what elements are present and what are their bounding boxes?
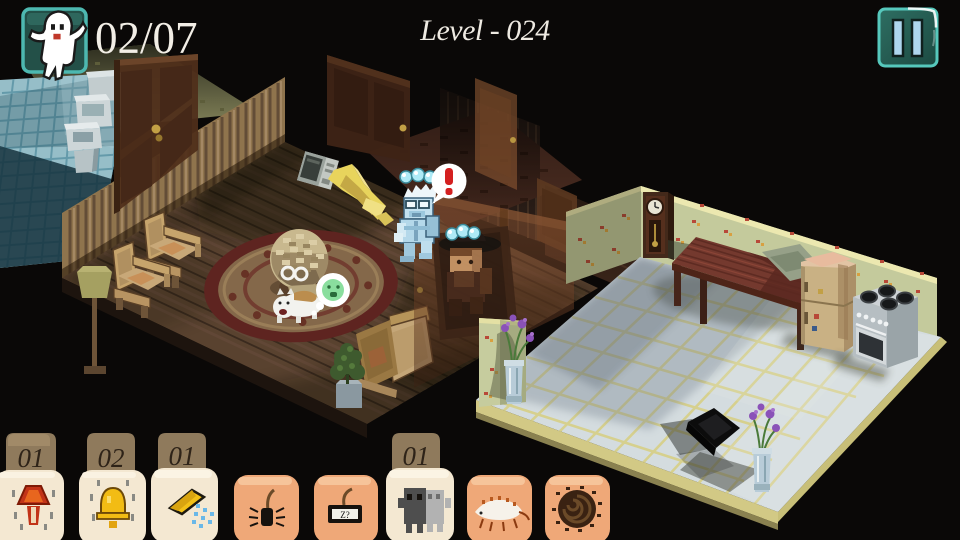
- svg-text:Level - 024: Level - 024: [419, 14, 550, 47]
- svg-text:02/07: 02/07: [95, 13, 198, 63]
- svg-text:Z?: Z?: [340, 510, 350, 520]
- svg-text:02: 02: [98, 443, 125, 473]
- svg-text:01: 01: [403, 441, 430, 471]
- svg-text:01: 01: [18, 443, 45, 473]
- svg-text:01: 01: [169, 441, 196, 471]
